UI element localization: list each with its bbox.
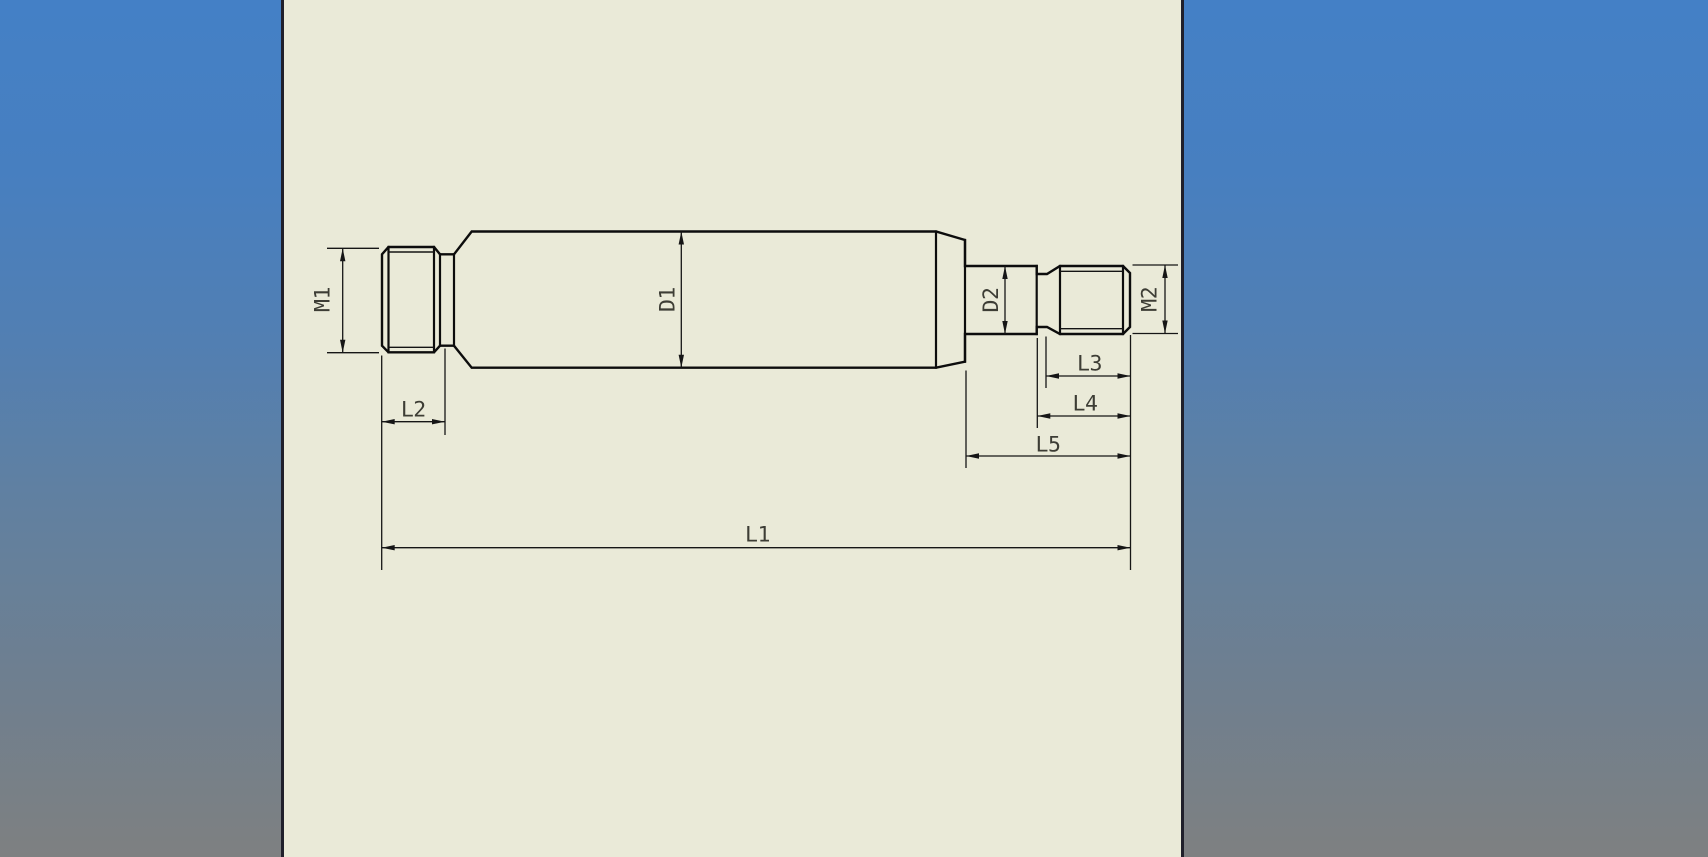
dim-label-d2: D2 [979, 288, 1004, 313]
dim-label-l1: L1 [745, 523, 770, 548]
dim-label-l3: L3 [1077, 352, 1102, 377]
arrowhead-down [1002, 321, 1007, 334]
dim-label-l2: L2 [401, 397, 426, 422]
dim-label-m1: M1 [311, 287, 336, 312]
dimension-l2: L2 [382, 349, 445, 571]
technical-drawing: M1 D1 D2 M2 [0, 0, 1708, 857]
arrowhead-down [679, 355, 684, 368]
dim-label-d1: D1 [656, 287, 681, 312]
cad-viewport[interactable]: M1 D1 D2 M2 [0, 0, 1708, 857]
dim-label-m2: M2 [1138, 287, 1163, 312]
dim-label-l5: L5 [1036, 433, 1061, 458]
arrowhead-up [679, 232, 684, 245]
dimension-l5: L5 [966, 371, 1131, 469]
dimension-m1: M1 [311, 248, 380, 352]
arrowhead-right [432, 419, 445, 424]
arrowhead-left [382, 419, 395, 424]
arrowhead-left [1046, 373, 1059, 378]
arrowhead-down [340, 340, 345, 353]
dim-label-l4: L4 [1073, 392, 1098, 417]
arrowhead-up [1002, 266, 1007, 279]
dimension-l1: L1 [382, 523, 1131, 551]
arrowhead-left [382, 545, 395, 550]
arrowhead-right [1118, 373, 1131, 378]
part-outline [382, 232, 1130, 368]
arrowhead-right [1118, 413, 1131, 418]
arrowhead-right [1118, 545, 1131, 550]
arrowhead-down [1162, 321, 1167, 334]
part-side-view [382, 232, 1130, 368]
dimension-d1: D1 [656, 232, 685, 368]
arrowhead-up [1162, 265, 1167, 278]
arrowhead-left [966, 453, 979, 458]
dimension-m2: M2 [1133, 265, 1179, 334]
arrowhead-left [1037, 413, 1050, 418]
dimension-d2: D2 [979, 266, 1008, 334]
arrowhead-up [340, 248, 345, 261]
arrowhead-right [1118, 453, 1131, 458]
